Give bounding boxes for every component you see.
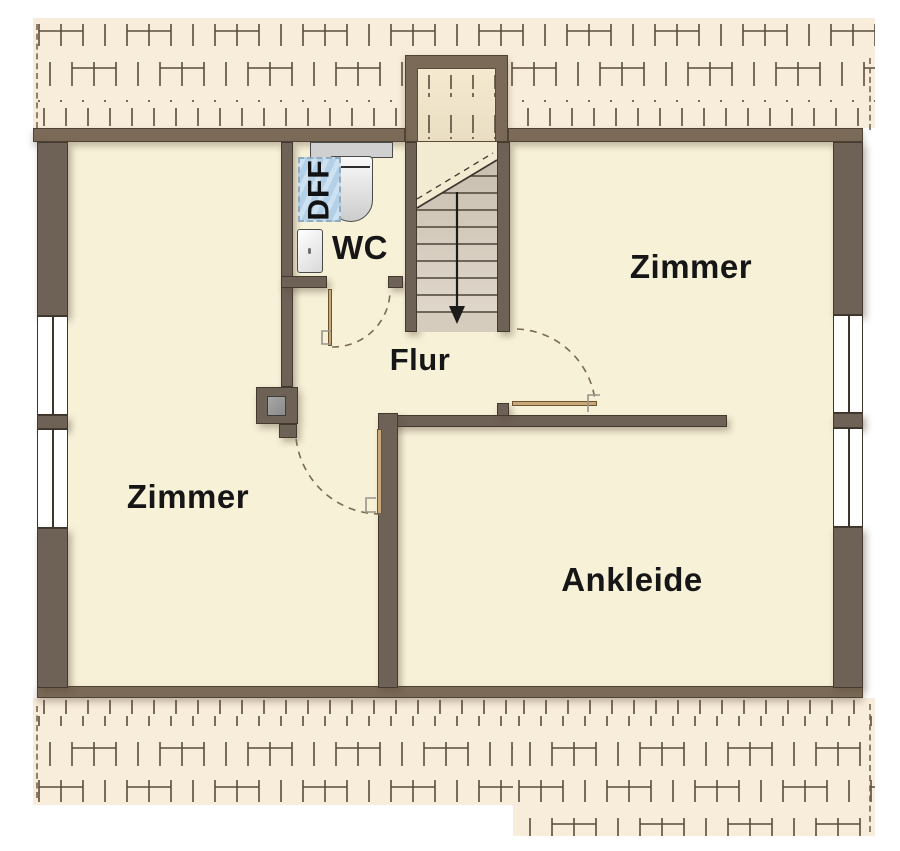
exterior-wall-right-upper [833,142,863,315]
exterior-wall-bottom [37,686,863,698]
wall-wc-left [281,142,293,387]
roof-hatch-bottom-left [33,698,513,805]
wall-wc-bottom [281,276,327,288]
sink-drain [308,248,311,254]
eave-dash-top-left [36,24,38,128]
window-mullion [848,429,850,526]
roof-window-dff: DFF [298,157,341,222]
exterior-wall-right-lower [833,527,863,688]
window-pier-right [833,413,863,428]
eave-dash-bottom-right [869,704,871,832]
door-leaf-zimmer-right [512,401,597,406]
window-left-lower [37,429,68,528]
exterior-wall-top-left [33,128,405,142]
window-mullion [52,430,54,527]
wall-stair-right [497,142,510,332]
door-jamb-zimmer-left [279,424,297,438]
roof-hatch-bottom-right [513,698,875,836]
window-pier-left [37,415,68,429]
exterior-wall-top-right [508,128,863,142]
stair-dormer-opening [417,68,496,142]
floor-plan: DFF Zimmer Zimmer WC Flur Ankleide [0,0,900,851]
exterior-wall-left-upper [37,142,68,316]
eave-dash-top-right [869,58,871,130]
eave-dash-bottom-left [36,706,38,798]
door-leaf-wc [328,289,332,346]
staircase [417,142,497,332]
sink [297,229,323,273]
room-label-ankleide: Ankleide [547,562,717,598]
room-label-zimmer-left: Zimmer [108,479,268,515]
wall-wc-bottom-stub [388,276,403,288]
window-left-upper [37,316,68,415]
door-leaf-zimmer-left [377,429,382,514]
room-label-wc: WC [332,230,388,266]
dff-label: DFF [303,159,337,220]
chimney-flue [267,396,286,416]
door-jamb-zimmer-right [497,403,509,416]
window-mullion [848,316,850,412]
window-mullion [52,317,54,414]
window-right-upper [833,315,863,413]
room-label-zimmer-right: Zimmer [611,249,771,285]
exterior-wall-left-lower [37,528,68,688]
wall-ankleide-top [390,415,727,427]
wall-stair-left [405,142,417,332]
window-right-lower [833,428,863,527]
room-label-flur: Flur [389,342,451,378]
